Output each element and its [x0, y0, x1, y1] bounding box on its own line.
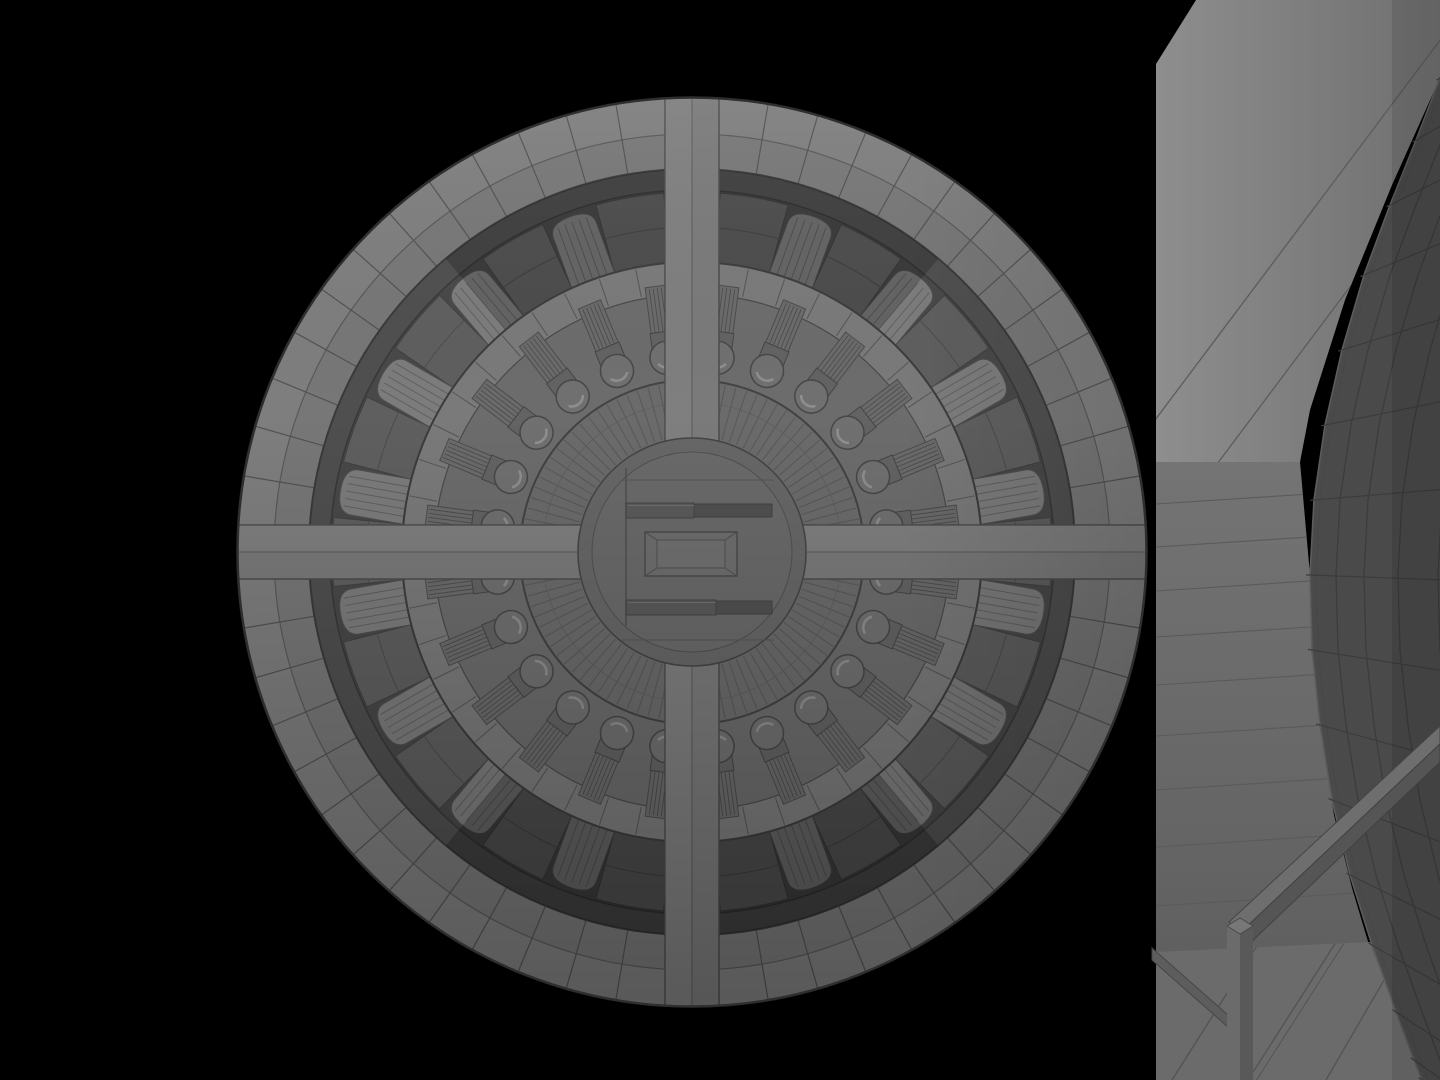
handrail-post	[1240, 926, 1253, 1080]
render-viewport	[0, 0, 1440, 1080]
handrail-post	[1227, 926, 1240, 1080]
doorframe-band-shade	[1392, 0, 1440, 1080]
vault-render	[0, 0, 1440, 1080]
